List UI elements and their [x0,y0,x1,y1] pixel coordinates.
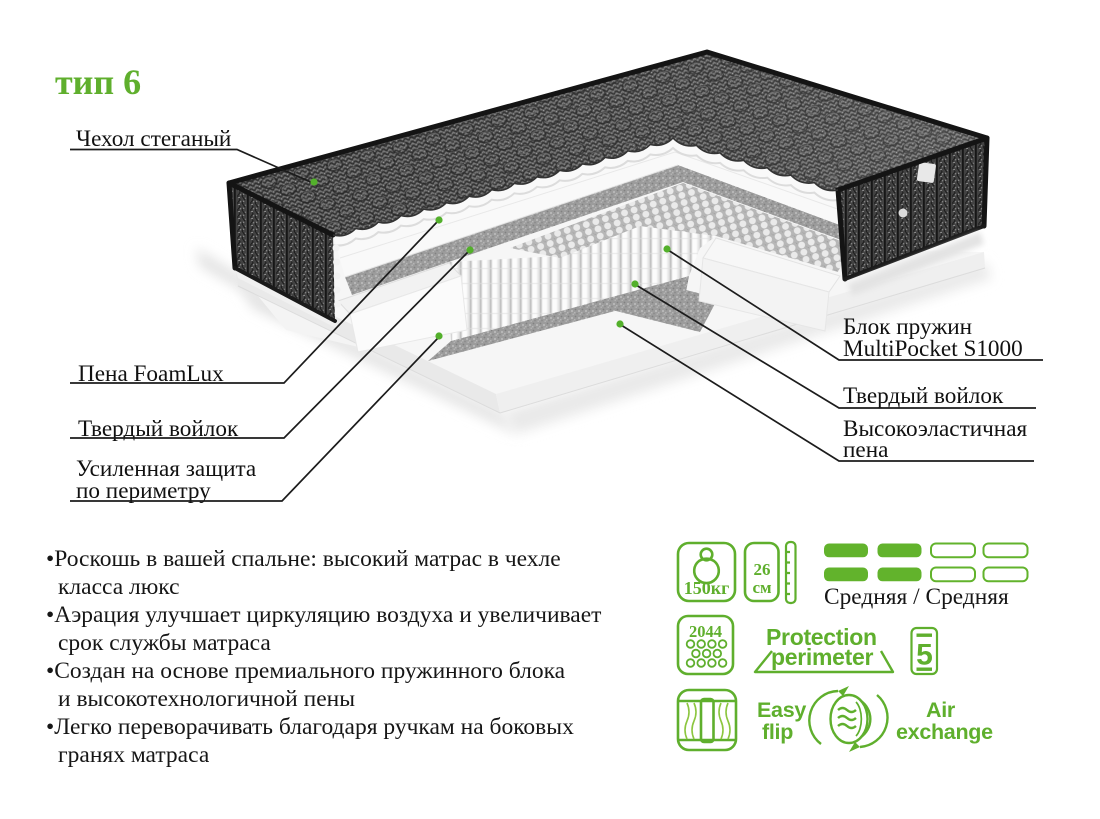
svg-text:flip: flip [762,720,793,744]
svg-text:тип 6: тип 6 [55,62,141,102]
svg-text:по периметру: по периметру [76,478,211,504]
svg-text:и высокотехнологичной пены: и высокотехнологичной пены [58,686,355,712]
svg-text:см: см [752,578,772,597]
svg-text:•Роскошь в вашей спальне: высо: •Роскошь в вашей спальне: высокий матрас… [46,546,561,572]
svg-text:•Создан на основе премиального: •Создан на основе премиального пружинног… [46,658,566,684]
svg-text:класса люкс: класса люкс [58,574,180,600]
svg-text:perimeter: perimeter [771,644,873,670]
svg-text:150кг: 150кг [684,578,730,598]
svg-text:MultiPocket S1000: MultiPocket S1000 [843,336,1023,362]
svg-text:срок службы матраса: срок службы матраса [58,630,271,656]
svg-text:•Аэрация улучшает циркуляцию в: •Аэрация улучшает циркуляцию воздуха и у… [46,602,601,628]
svg-text:2044: 2044 [689,622,722,641]
svg-text:5: 5 [916,639,933,672]
svg-text:пена: пена [843,437,888,463]
svg-text:Easy: Easy [757,698,806,722]
svg-text:Чехол стеганый: Чехол стеганый [76,126,231,152]
svg-text:гранях матраса: гранях матраса [58,742,210,768]
svg-text:Air: Air [926,698,956,722]
svg-text:26: 26 [754,560,771,579]
svg-text:Средняя / Средняя: Средняя / Средняя [824,584,1009,610]
svg-text:Твердый войлок: Твердый войлок [843,383,1004,409]
svg-text:exchange: exchange [896,720,993,744]
svg-text:•Легко переворачивать благодар: •Легко переворачивать благодаря ручкам н… [46,714,574,740]
